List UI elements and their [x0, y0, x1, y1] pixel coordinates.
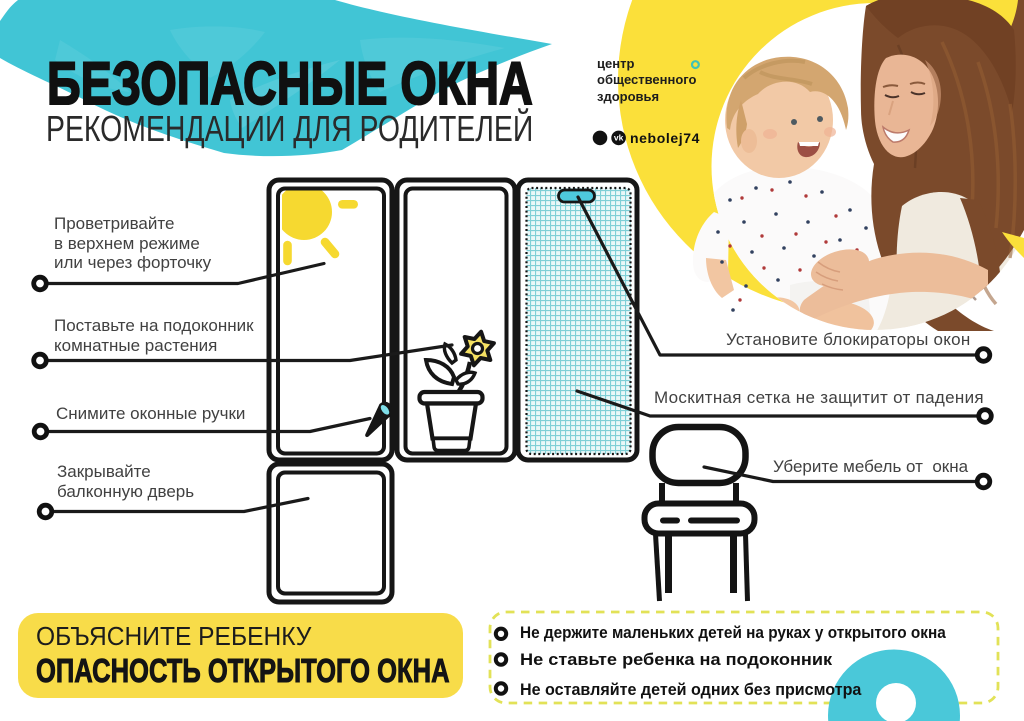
svg-text:vk: vk [614, 133, 624, 143]
